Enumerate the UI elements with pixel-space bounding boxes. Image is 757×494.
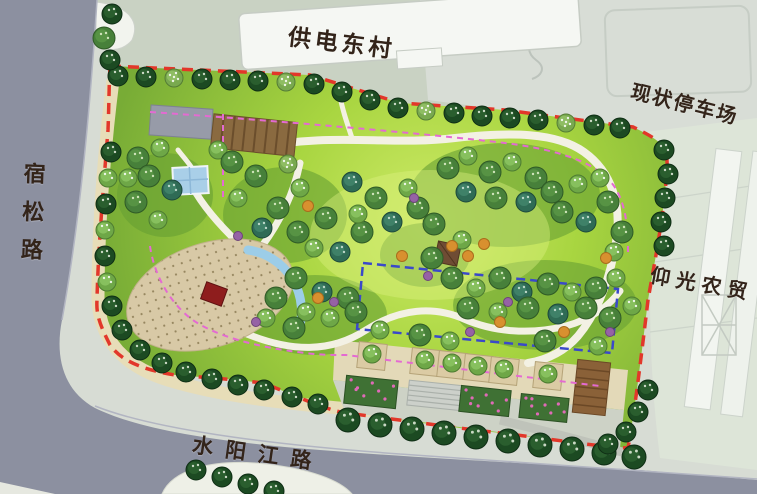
tree-m: [138, 165, 160, 187]
tree-m: [611, 221, 633, 243]
tree-l: [321, 309, 339, 327]
tree-l: [495, 360, 513, 378]
tree-d: [248, 71, 268, 91]
tree-d: [368, 413, 392, 437]
tree-d: [654, 140, 674, 160]
tree-w: [165, 69, 183, 87]
tree-m: [541, 181, 563, 203]
tree-t: [456, 182, 476, 202]
tree-d: [655, 188, 675, 208]
tree-l: [119, 169, 137, 187]
tree-m: [287, 221, 309, 243]
tree-l: [229, 189, 247, 207]
tree-l: [305, 239, 323, 257]
tree-d: [638, 380, 658, 400]
tree-l: [539, 365, 557, 383]
tree-m: [345, 301, 367, 323]
tree-l: [363, 345, 381, 363]
tree-t: [330, 242, 350, 262]
tree-d: [202, 369, 222, 389]
tree-m: [517, 297, 539, 319]
shrub-purple: [606, 328, 615, 337]
tree-m: [285, 267, 307, 289]
tree-d: [628, 402, 648, 422]
tree-d: [238, 474, 258, 494]
tree-d: [472, 106, 492, 126]
shrub-orange: [601, 253, 612, 264]
tree-t: [576, 212, 596, 232]
tree-d: [220, 70, 240, 90]
tree-m: [597, 191, 619, 213]
tree-m: [599, 307, 621, 329]
tree-l: [96, 221, 114, 239]
shrub-purple: [410, 194, 419, 203]
tree-m: [479, 161, 501, 183]
tree-m: [534, 330, 556, 352]
tree-d: [658, 164, 678, 184]
tree-d: [651, 212, 671, 232]
tree-t: [162, 180, 182, 200]
shrub-orange: [313, 293, 324, 304]
tree-d: [654, 236, 674, 256]
shrub-orange: [559, 327, 570, 338]
tree-d: [610, 118, 630, 138]
tree-l: [371, 321, 389, 339]
tree-l: [459, 147, 477, 165]
tree-l: [467, 279, 485, 297]
tree-l: [149, 211, 167, 229]
tree-d: [622, 445, 646, 469]
tree-m: [585, 277, 607, 299]
tree-d: [186, 460, 206, 480]
shrub-orange: [303, 201, 314, 212]
tree-d: [560, 437, 584, 461]
tree-d: [388, 98, 408, 118]
shrub-purple: [466, 328, 475, 337]
tree-d: [332, 82, 352, 102]
tree-m: [575, 297, 597, 319]
tree-m: [265, 287, 287, 309]
tree-m: [489, 267, 511, 289]
tree-m: [441, 267, 463, 289]
tree-d: [528, 110, 548, 130]
flower-bed: [344, 375, 399, 408]
tree-d: [102, 4, 122, 24]
tree-l: [563, 283, 581, 301]
shrub-purple: [330, 298, 339, 307]
shrub-orange: [447, 241, 458, 252]
tree-d: [616, 422, 636, 442]
tree-d: [400, 417, 424, 441]
tree-d: [496, 429, 520, 453]
tree-d: [464, 425, 488, 449]
tree-d: [500, 108, 520, 128]
tree-m: [245, 165, 267, 187]
shrub-purple: [424, 272, 433, 281]
tree-d: [95, 246, 115, 266]
label-road-west: 宿松路: [12, 161, 48, 276]
shrub-purple: [504, 298, 513, 307]
tree-l: [416, 351, 434, 369]
tree-m: [283, 317, 305, 339]
tree-m: [457, 297, 479, 319]
tree-t: [548, 304, 568, 324]
tree-t: [252, 218, 272, 238]
tree-d: [360, 90, 380, 110]
tree-d: [212, 467, 232, 487]
tree-t: [516, 192, 536, 212]
tree-d: [444, 103, 464, 123]
tree-d: [112, 320, 132, 340]
existing-structure: [149, 105, 213, 139]
tree-d: [228, 375, 248, 395]
tree-t: [342, 172, 362, 192]
tree-d: [136, 67, 156, 87]
tree-m: [221, 151, 243, 173]
flower-bed: [519, 394, 569, 423]
tree-d: [282, 387, 302, 407]
tree-w: [277, 73, 295, 91]
tree-m: [551, 201, 573, 223]
tree-l: [98, 273, 116, 291]
shrub-purple: [234, 232, 243, 241]
tree-l: [291, 179, 309, 197]
steps: [407, 380, 466, 411]
wood-deck: [572, 359, 610, 415]
tree-d: [304, 74, 324, 94]
tree-d: [308, 394, 328, 414]
tree-m: [351, 221, 373, 243]
tree-d: [192, 69, 212, 89]
tree-m: [267, 197, 289, 219]
tree-l: [99, 169, 117, 187]
tree-d: [96, 194, 116, 214]
tree-d: [254, 380, 274, 400]
tree-m: [125, 191, 147, 213]
tree-w: [279, 155, 297, 173]
tree-d: [102, 296, 122, 316]
tree-d: [598, 434, 618, 454]
tree-l: [623, 297, 641, 315]
tree-m: [485, 187, 507, 209]
shrub-orange: [463, 251, 474, 262]
plan-drawing: [0, 0, 757, 494]
site-plan: 供电东村 现状停车场 宿松路 仰光农贸 水阳江路: [0, 0, 757, 494]
tree-d: [584, 115, 604, 135]
tree-l: [151, 139, 169, 157]
tree-w: [417, 102, 435, 120]
tree-d: [528, 433, 552, 457]
tree-m: [409, 324, 431, 346]
tree-m: [437, 157, 459, 179]
tree-m: [315, 207, 337, 229]
tree-l: [443, 354, 461, 372]
shrub-orange: [397, 251, 408, 262]
tree-d: [336, 408, 360, 432]
tree-m: [423, 213, 445, 235]
tree-m: [421, 247, 443, 269]
flower-bed: [459, 385, 511, 416]
shrub-purple: [252, 318, 261, 327]
tree-l: [441, 332, 459, 350]
tree-l: [349, 205, 367, 223]
tree-d: [101, 142, 121, 162]
tree-l: [607, 269, 625, 287]
shrub-orange: [495, 317, 506, 328]
tree-m: [537, 273, 559, 295]
tree-t: [382, 212, 402, 232]
tree-w: [557, 114, 575, 132]
tree-d: [152, 353, 172, 373]
tree-d: [100, 50, 120, 70]
tree-l: [569, 175, 587, 193]
tree-l: [503, 153, 521, 171]
tree-l: [591, 169, 609, 187]
tree-m: [365, 187, 387, 209]
tree-d: [432, 421, 456, 445]
tree-d: [130, 340, 150, 360]
shrub-orange: [479, 239, 490, 250]
tree-d: [176, 362, 196, 382]
tree-l: [589, 337, 607, 355]
tree-l: [469, 357, 487, 375]
tree-m: [93, 27, 115, 49]
